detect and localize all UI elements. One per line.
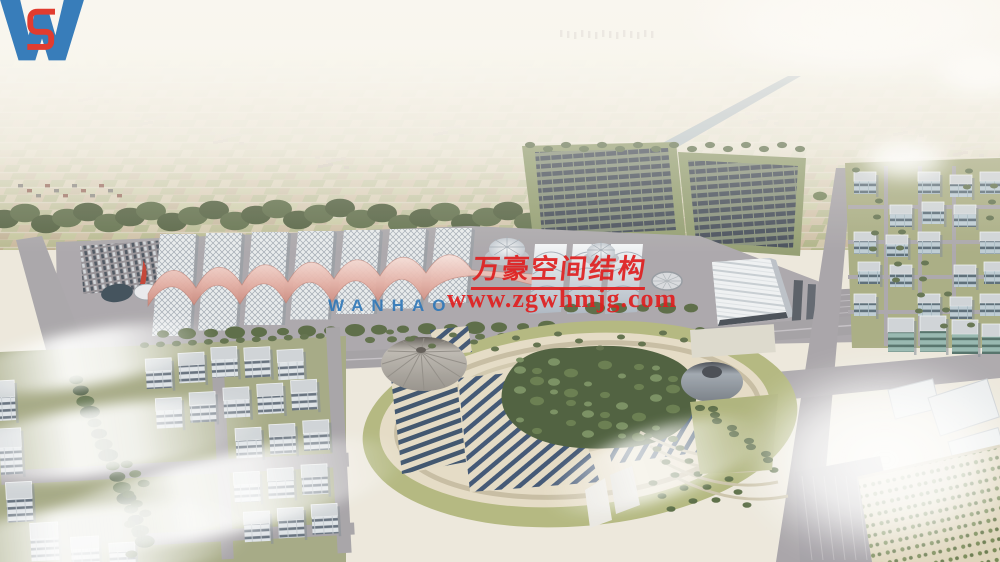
city-blocks-left	[0, 327, 356, 562]
aerial-architectural-rendering: WANHAO 万豪空间结构 www.zgwhmjg.com	[0, 0, 1000, 562]
rendered-landscape	[0, 0, 1000, 562]
